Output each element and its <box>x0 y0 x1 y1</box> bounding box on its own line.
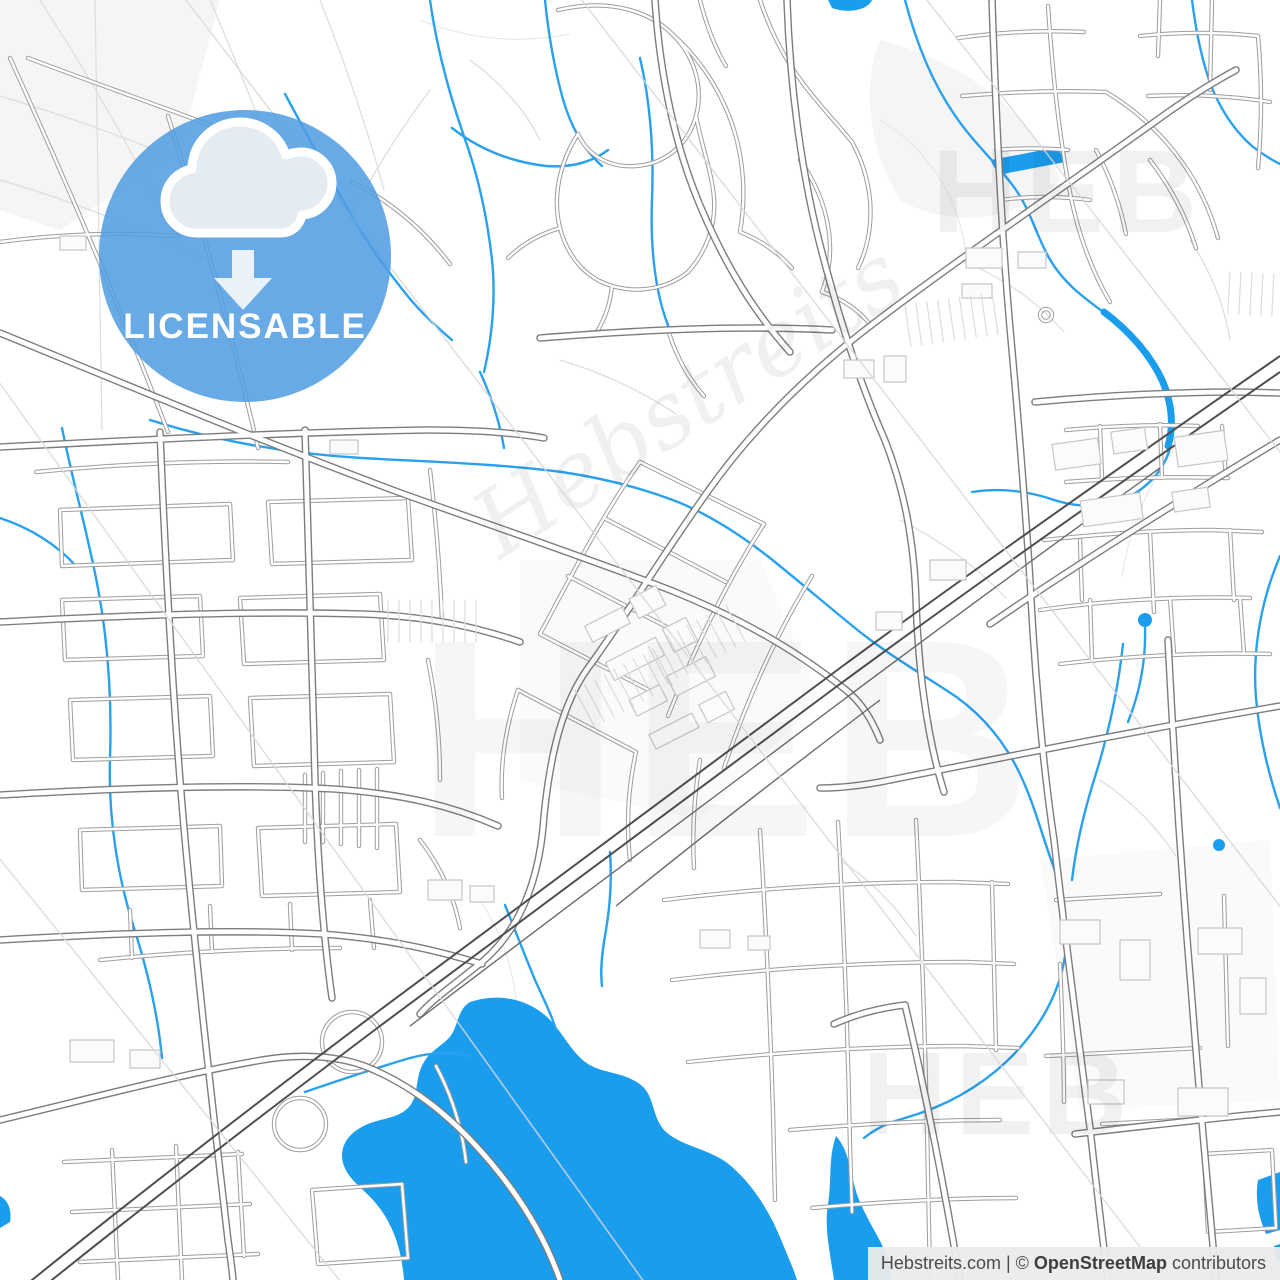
attribution-source-link[interactable]: Hebstreits.com <box>881 1247 1001 1280</box>
watermark-letters-center: HEB <box>416 581 1041 896</box>
attribution-bar: Hebstreits.com | © OpenStreetMap contrib… <box>868 1247 1280 1280</box>
watermark-letters-bottom: HEB <box>862 1028 1135 1160</box>
badge-label: LICENSABLE <box>123 307 367 346</box>
licensable-badge[interactable]: LICENSABLE <box>99 110 391 402</box>
attribution-copyright: © <box>1016 1247 1029 1280</box>
watermark-letters-top: HEB <box>932 126 1205 258</box>
map-canvas: HEB HEB HEB Hebstreits LICENSABLE <box>0 0 1280 1280</box>
attribution-separator: | <box>1006 1247 1011 1280</box>
attribution-openstreetmap-link[interactable]: OpenStreetMap <box>1034 1247 1167 1280</box>
map-preview: HEB HEB HEB Hebstreits LICENSABLE Hebstr… <box>0 0 1280 1280</box>
attribution-suffix: contributors <box>1172 1247 1266 1280</box>
